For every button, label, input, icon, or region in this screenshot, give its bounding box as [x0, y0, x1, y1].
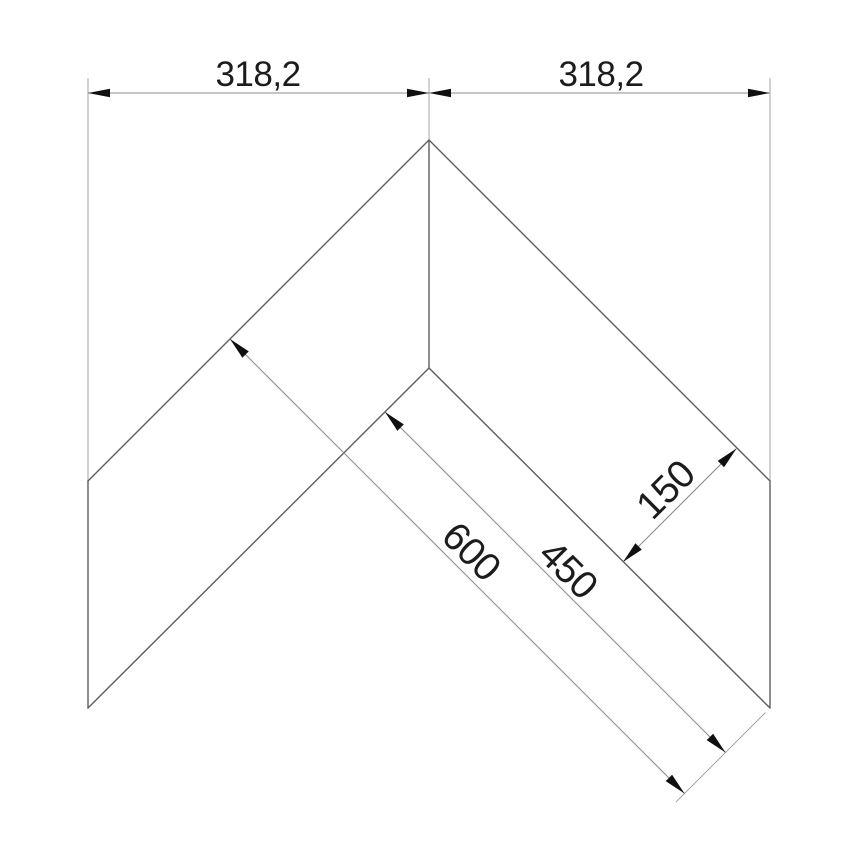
arrowhead-left-out	[88, 89, 110, 97]
dimension-label-top-right: 318,2	[558, 55, 643, 94]
dimension-label-top-left: 318,2	[215, 55, 300, 94]
dimension-label-600: 600	[433, 514, 508, 589]
technical-drawing-svg: 318,2 318,2 600 450 150	[0, 0, 858, 858]
arrowhead-right-out	[748, 89, 770, 97]
drawing-canvas: 318,2 318,2 600 450 150	[0, 0, 858, 858]
dimension-label-450: 450	[530, 532, 605, 607]
extension-line-bottom-corner	[676, 713, 766, 803]
arrowhead-center-left	[429, 89, 451, 97]
dimension-150: 150	[623, 449, 737, 563]
dimension-600: 600	[230, 339, 685, 794]
arrowhead-center-right	[407, 89, 429, 97]
dimension-label-150: 150	[628, 452, 703, 527]
part-outline	[88, 140, 770, 708]
